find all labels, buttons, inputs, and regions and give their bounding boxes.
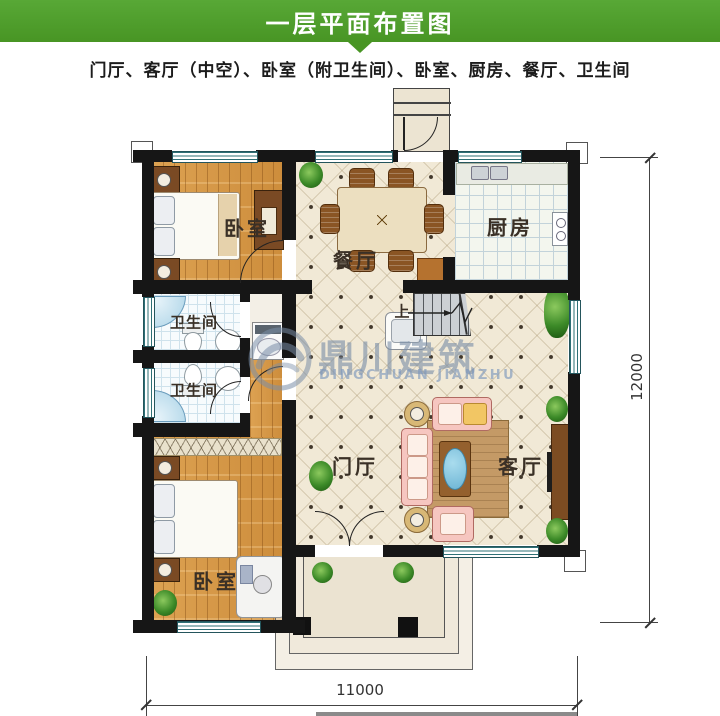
basin-oval bbox=[257, 338, 281, 356]
stove bbox=[552, 212, 568, 246]
stair-up-label: 上 bbox=[394, 301, 409, 322]
page-title: 一层平面布置图 bbox=[266, 4, 455, 39]
wall bbox=[282, 400, 296, 633]
dining-chair bbox=[424, 204, 444, 234]
long-sofa bbox=[401, 428, 433, 506]
title-notch-triangle bbox=[348, 42, 372, 53]
lamp-icon bbox=[410, 513, 424, 527]
wall bbox=[443, 150, 458, 162]
burner-icon bbox=[556, 231, 566, 241]
loveseat-sofa bbox=[432, 397, 492, 431]
wall bbox=[240, 294, 250, 302]
armchair bbox=[432, 506, 474, 542]
sink-basin bbox=[490, 166, 508, 180]
potted-plant bbox=[153, 590, 177, 616]
sofa-cushion bbox=[407, 456, 428, 478]
room-label-bath-upper: 卫生间 bbox=[170, 312, 218, 333]
wall bbox=[383, 545, 443, 557]
dimension-value-right: 12000 bbox=[628, 350, 646, 404]
wall bbox=[133, 423, 250, 437]
dimension-line-bottom bbox=[146, 705, 578, 706]
sofa-cushion bbox=[463, 403, 487, 425]
burner-icon bbox=[556, 218, 566, 228]
porch-bush bbox=[393, 562, 414, 583]
wall bbox=[568, 372, 580, 557]
lamp-icon bbox=[410, 407, 424, 421]
porch-column bbox=[398, 617, 418, 637]
lamp-icon bbox=[158, 461, 172, 475]
dimension-value-bottom: 11000 bbox=[310, 681, 410, 699]
wall bbox=[296, 545, 315, 557]
nightstand bbox=[150, 456, 180, 480]
rear-door-leaf bbox=[403, 117, 405, 150]
room-label-living: 客厅 bbox=[498, 451, 544, 480]
porch-bush bbox=[312, 562, 333, 583]
wall bbox=[537, 545, 580, 557]
laundry-basin bbox=[252, 322, 284, 360]
computer-icon bbox=[240, 565, 253, 584]
room-label-bath-lower: 卫生间 bbox=[170, 380, 218, 401]
wall bbox=[256, 150, 315, 162]
nightstand bbox=[150, 558, 180, 582]
potted-plant bbox=[544, 286, 570, 338]
potted-plant bbox=[546, 396, 568, 422]
wall bbox=[403, 280, 568, 293]
dimension-ext-line bbox=[146, 656, 147, 716]
next-section-edge bbox=[316, 712, 577, 716]
wall bbox=[142, 150, 154, 297]
pillow bbox=[153, 227, 175, 256]
sofa-cushion bbox=[407, 478, 428, 500]
pillow bbox=[153, 484, 175, 518]
room-label-hall: 门厅 bbox=[332, 451, 378, 480]
window bbox=[143, 368, 155, 418]
desk bbox=[236, 556, 286, 618]
dining-chair bbox=[320, 204, 340, 234]
window bbox=[443, 546, 539, 558]
vestibule-line bbox=[393, 102, 451, 104]
window bbox=[177, 621, 261, 633]
room-label-bedroom-top: 卧室 bbox=[224, 213, 270, 242]
wall bbox=[240, 413, 250, 427]
window bbox=[458, 151, 522, 163]
potted-plant bbox=[309, 461, 333, 491]
window bbox=[569, 300, 581, 374]
window bbox=[315, 151, 393, 163]
room-list-subtitle: 门厅、客厅（中空）、卧室（附卫生间）、卧室、厨房、餐厅、卫生间 bbox=[0, 56, 720, 81]
sink-basin bbox=[471, 166, 489, 180]
wall bbox=[443, 162, 455, 195]
wall bbox=[142, 416, 154, 633]
wall bbox=[568, 150, 580, 300]
potted-plant bbox=[299, 162, 323, 188]
sofa-cushion bbox=[440, 513, 466, 535]
room-label-kitchen: 厨房 bbox=[487, 212, 533, 241]
table-glass bbox=[443, 448, 467, 490]
dimension-line-right bbox=[649, 158, 650, 623]
dining-table bbox=[337, 187, 427, 253]
table-centerpiece bbox=[377, 215, 387, 225]
potted-plant bbox=[546, 518, 568, 544]
wall bbox=[240, 338, 250, 377]
tv-icon bbox=[547, 452, 552, 492]
room-label-bedroom-bottom: 卧室 bbox=[193, 566, 239, 595]
laundry-lid bbox=[255, 325, 281, 334]
side-table bbox=[404, 401, 430, 427]
vestibule-line bbox=[393, 114, 451, 116]
pillow bbox=[153, 196, 175, 225]
sofa-cushion bbox=[438, 403, 462, 425]
sofa-cushion bbox=[407, 434, 428, 456]
dining-chair bbox=[388, 250, 414, 272]
lamp-icon bbox=[157, 173, 171, 187]
wall bbox=[282, 282, 296, 358]
wall bbox=[282, 162, 296, 240]
lamp-icon bbox=[157, 265, 171, 279]
stair-direction-arrow bbox=[406, 300, 478, 326]
side-table bbox=[404, 507, 430, 533]
coffee-table bbox=[439, 441, 471, 497]
wall bbox=[133, 350, 250, 363]
floor-plan-page: 一层平面布置图 门厅、客厅（中空）、卧室（附卫生间）、卧室、厨房、餐厅、卫生间 bbox=[0, 0, 720, 716]
window bbox=[143, 297, 155, 347]
lamp-icon bbox=[158, 563, 172, 577]
closet-rack bbox=[152, 438, 282, 456]
window bbox=[172, 151, 258, 163]
pillow bbox=[153, 520, 175, 554]
page-title-bar: 一层平面布置图 bbox=[0, 0, 720, 42]
dimension-ext-line bbox=[577, 656, 578, 716]
room-label-dining: 餐厅 bbox=[333, 245, 379, 274]
desk-chair bbox=[253, 575, 272, 594]
